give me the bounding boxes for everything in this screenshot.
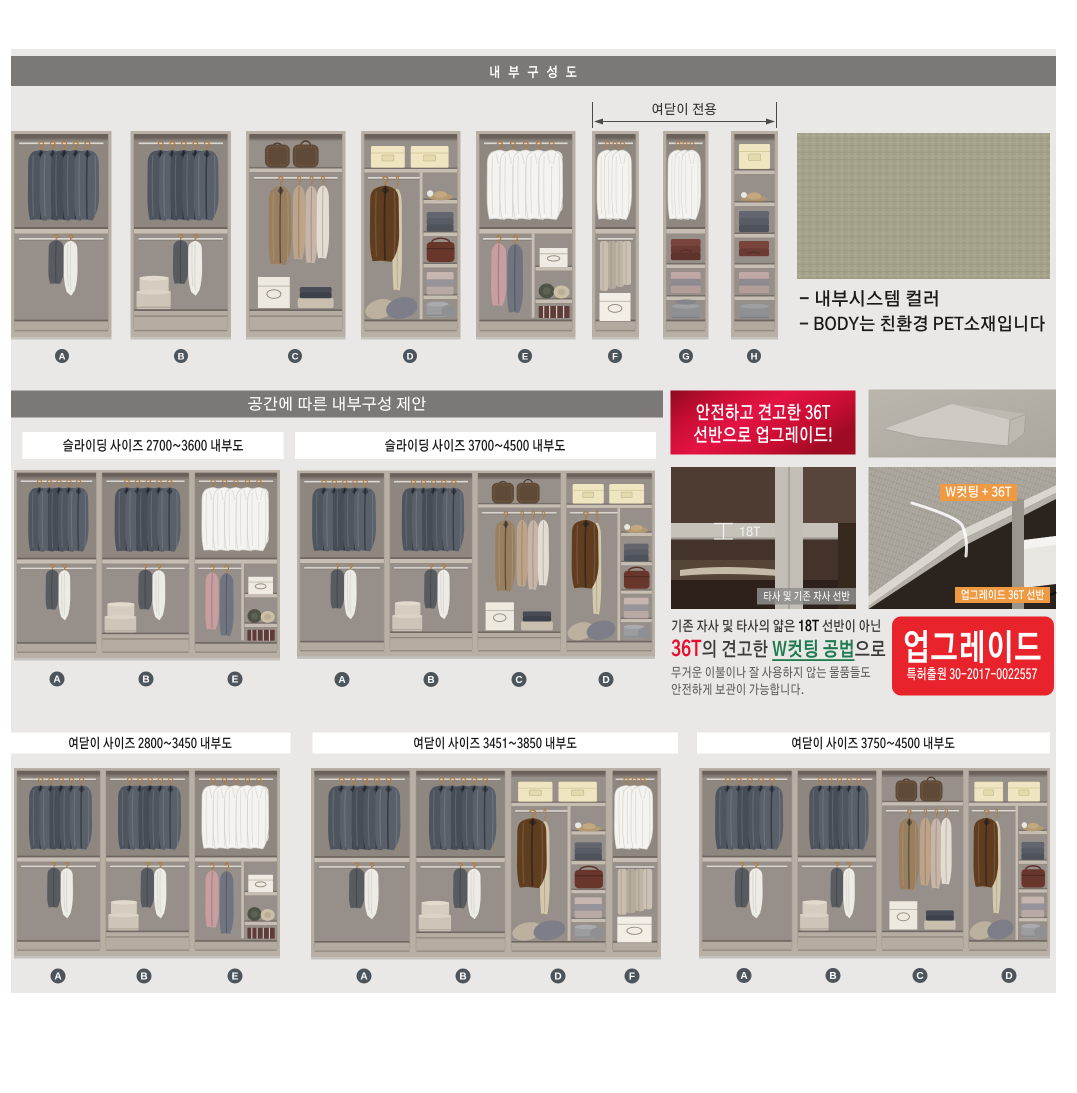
svg-text:B: B <box>140 972 147 983</box>
svg-text:D: D <box>1005 971 1012 982</box>
svg-text:A: A <box>53 675 61 686</box>
svg-text:D: D <box>407 351 414 362</box>
svg-text:A: A <box>360 972 368 983</box>
svg-text:B: B <box>459 972 466 983</box>
svg-text:G: G <box>682 351 689 362</box>
svg-text:F: F <box>629 972 635 983</box>
svg-text:A: A <box>338 675 346 686</box>
svg-text:A: A <box>740 971 748 982</box>
svg-text:A: A <box>59 351 66 362</box>
svg-text:C: C <box>515 675 523 686</box>
svg-text:B: B <box>142 675 149 686</box>
svg-text:D: D <box>602 675 609 686</box>
svg-text:E: E <box>232 675 239 686</box>
svg-text:A: A <box>54 972 62 983</box>
svg-text:B: B <box>178 351 185 362</box>
svg-text:B: B <box>427 675 434 686</box>
svg-text:H: H <box>751 351 758 362</box>
svg-text:E: E <box>232 972 239 983</box>
svg-text:B: B <box>829 971 836 982</box>
svg-text:E: E <box>522 351 528 362</box>
svg-text:C: C <box>292 351 299 362</box>
svg-text:F: F <box>612 351 618 362</box>
svg-text:C: C <box>916 971 924 982</box>
svg-text:D: D <box>554 972 561 983</box>
